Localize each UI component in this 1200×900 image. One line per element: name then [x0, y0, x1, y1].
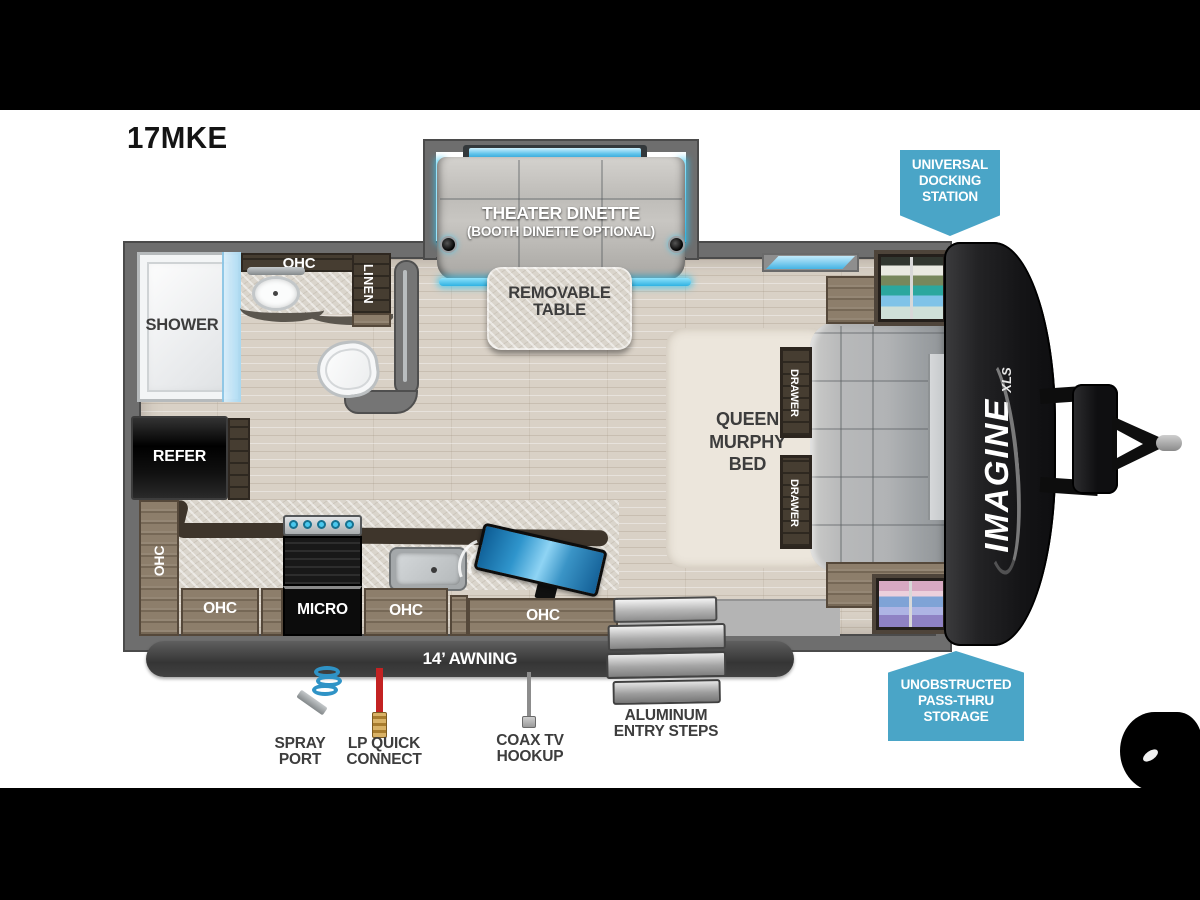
faucet-icon: [247, 267, 305, 275]
wardrobe-rear-divider: [909, 581, 912, 627]
drawer-label: DRAWER: [788, 352, 800, 434]
entry-steps-label: ALUMINUM ENTRY STEPS: [598, 708, 734, 741]
stove-knob: [303, 520, 312, 529]
bath-door: [403, 270, 407, 382]
lp-quick-connect-icon: [369, 668, 389, 738]
bed-line3: BED: [729, 454, 766, 474]
brand-wordmark: IMAGINE XLS: [967, 340, 1027, 580]
bed-line1: QUEEN: [716, 409, 779, 429]
steps-line1: ALUMINUM: [625, 707, 708, 724]
stove-knob: [345, 520, 354, 529]
hitch-coupler: [1156, 435, 1182, 451]
nightstand-front: [826, 276, 880, 324]
bedroom-window-glass: [766, 256, 855, 269]
stove-body: [283, 536, 362, 586]
lp-quick-connect-label: LP QUICK CONNECT: [338, 736, 430, 769]
page-title: 17MKE: [127, 120, 228, 156]
pass-line3: STORAGE: [923, 709, 988, 724]
removable-line2: TABLE: [533, 301, 586, 319]
coil: [312, 684, 338, 696]
pass-line1: UNOBSTRUCTED: [901, 677, 1012, 692]
pass-thru-badge: UNOBSTRUCTED PASS-THRU STORAGE: [888, 651, 1024, 741]
coax-hookup-icon: [520, 672, 538, 730]
coax-line2: HOOKUP: [497, 748, 564, 765]
bed-line2: MURPHY: [709, 432, 786, 452]
bath-sink-drain: [273, 291, 278, 296]
wardrobe-front-divider: [910, 257, 913, 319]
floorplan-canvas: 17MKE THEATER DINETTE (BOOTH DINETTE OPT…: [0, 0, 1200, 900]
murphy-sofa-seam: [840, 326, 842, 568]
lp-line1: LP QUICK: [348, 735, 420, 752]
corner-artifact: [1120, 712, 1200, 792]
spray-port-label: SPRAY PORT: [258, 736, 342, 769]
pass-line2: PASS-THRU: [918, 693, 994, 708]
kitchen-sink-basin: [396, 553, 460, 585]
cabinet-ohc-label: OHC: [364, 602, 448, 620]
coax-plug: [522, 716, 536, 728]
propane-cover: [1072, 384, 1118, 494]
cabinet-ohc-label: OHC: [468, 607, 618, 625]
spray-line2: PORT: [279, 751, 321, 768]
brand-series: XLS: [999, 367, 1014, 392]
step-tread: [613, 596, 717, 623]
lp-line: [376, 668, 383, 714]
cabinet-ohc-label: OHC: [181, 600, 259, 618]
stove-knob: [289, 520, 298, 529]
docking-station-badge: UNIVERSAL DOCKING STATION: [900, 150, 1000, 236]
theater-dinette-label: THEATER DINETTE: [437, 203, 685, 224]
drawer-label: DRAWER: [788, 461, 800, 545]
stove-knob: [331, 520, 340, 529]
sofa-seam: [440, 198, 682, 200]
linen-label: LINEN: [361, 256, 375, 312]
booth-optional-label: (BOOTH DINETTE OPTIONAL): [430, 224, 692, 239]
kitchen-left-ohc-label: OHC: [151, 541, 167, 581]
micro-label: MICRO: [283, 601, 362, 619]
steps-line2: ENTRY STEPS: [614, 723, 719, 740]
coax-line1: COAX TV: [496, 732, 564, 749]
spray-port-icon: [310, 666, 344, 712]
docking-line3: STATION: [922, 189, 978, 204]
counter-edge: [176, 523, 288, 538]
removable-table-label: REMOVABLE TABLE: [487, 285, 632, 320]
coax-tv-hookup-label: COAX TV HOOKUP: [488, 733, 572, 766]
entry-steps-icon: [605, 596, 733, 708]
lp-line2: CONNECT: [346, 751, 421, 768]
linen-base: [352, 313, 391, 327]
refer-side-panel: [228, 418, 250, 502]
spray-line1: SPRAY: [275, 735, 326, 752]
stove-knob: [317, 520, 326, 529]
docking-line2: DOCKING: [919, 173, 981, 188]
removable-line1: REMOVABLE: [508, 284, 610, 302]
base-cabinet: [450, 595, 468, 636]
refer-label: REFER: [131, 448, 228, 466]
coax-line: [527, 672, 531, 718]
base-cabinet: [261, 588, 283, 636]
shower-label: SHOWER: [139, 317, 225, 334]
step-tread: [612, 679, 720, 705]
murphy-sofa-seam: [872, 326, 874, 568]
step-tread: [606, 651, 726, 679]
docking-line1: UNIVERSAL: [912, 157, 988, 172]
letterbox-bottom: [0, 788, 1200, 900]
brand-swoosh: [964, 353, 1029, 576]
step-tread: [608, 623, 726, 651]
kitchen-sink-drain: [431, 567, 437, 573]
letterbox-top: [0, 0, 1200, 110]
